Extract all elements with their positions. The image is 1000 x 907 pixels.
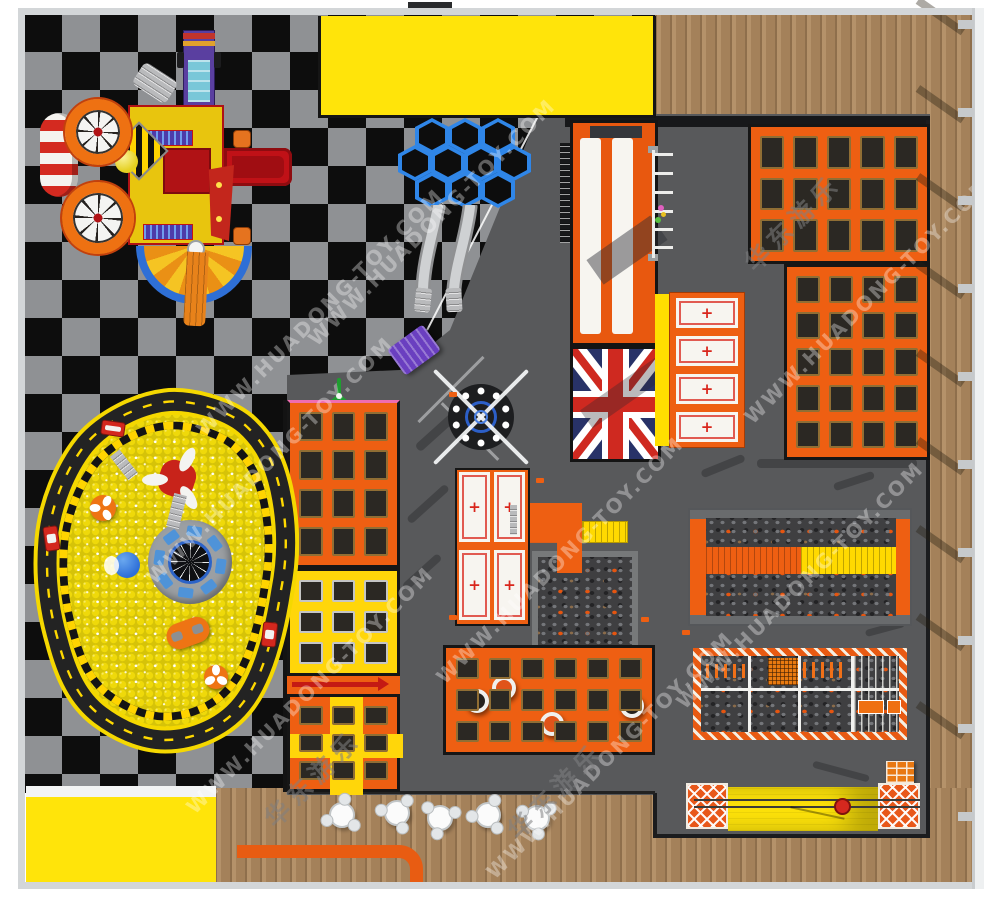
banner-star bbox=[216, 216, 222, 222]
trampoline-mat bbox=[299, 611, 323, 633]
wall-column-bracket bbox=[958, 108, 974, 117]
trampoline-grid-right-bottom bbox=[784, 264, 930, 460]
floor-tag bbox=[536, 478, 544, 483]
trampoline-mat bbox=[456, 721, 479, 742]
dot bbox=[452, 421, 461, 430]
tower-wheel-right bbox=[214, 52, 221, 68]
trampoline-mat bbox=[894, 136, 918, 169]
balance-beam-orange bbox=[706, 547, 801, 574]
wall-column-bracket bbox=[958, 284, 974, 293]
balance-beam-yellow bbox=[801, 547, 896, 574]
trampoline-mat bbox=[829, 312, 853, 339]
trampoline-mat bbox=[299, 527, 323, 556]
rocker-pad bbox=[191, 623, 204, 635]
reception-counter-edge bbox=[26, 786, 216, 797]
ladder-slats bbox=[854, 656, 899, 732]
trampoline-mat bbox=[587, 658, 610, 679]
trampoline-mat bbox=[299, 642, 323, 664]
trampoline-mat bbox=[894, 312, 918, 339]
wall-column-bracket bbox=[958, 372, 974, 381]
trampoline-mat bbox=[760, 178, 784, 211]
bar-ball-yellow bbox=[661, 212, 666, 217]
trampoline-grid-right-top bbox=[748, 124, 930, 264]
trampoline-strip-top bbox=[287, 400, 400, 568]
airtrack-yellow-strip bbox=[655, 294, 669, 446]
pod-petal bbox=[90, 504, 101, 512]
spin-pod bbox=[90, 495, 116, 521]
zipline-wire bbox=[694, 799, 920, 801]
train-tower-window bbox=[188, 60, 210, 102]
trampoline-mat bbox=[862, 276, 886, 303]
pad bbox=[186, 525, 202, 537]
chair bbox=[465, 809, 479, 823]
trampoline-mat bbox=[364, 734, 388, 753]
chair bbox=[486, 792, 503, 809]
court-beam bbox=[798, 656, 801, 732]
dot bbox=[478, 440, 485, 447]
trampoline-mat bbox=[332, 580, 356, 602]
trampoline-mat bbox=[332, 489, 356, 518]
trampoline-mat bbox=[489, 689, 512, 710]
orange-knob bbox=[233, 227, 251, 245]
trampoline-mat bbox=[554, 721, 577, 742]
wall-bottom bbox=[18, 882, 984, 889]
trampoline-mat bbox=[829, 421, 853, 448]
trampoline-mat bbox=[827, 219, 851, 252]
red-arrow-head bbox=[378, 677, 389, 691]
trampoline-mat bbox=[894, 219, 918, 252]
chair bbox=[345, 816, 363, 834]
floor-tag bbox=[682, 630, 690, 635]
trampoline-mat bbox=[299, 761, 323, 780]
trampoline-mat bbox=[829, 385, 853, 412]
wall-left bbox=[18, 8, 25, 888]
wall-bar bbox=[655, 246, 673, 249]
wall-bar bbox=[655, 172, 673, 175]
cafe-table bbox=[418, 796, 462, 840]
trampoline-mat bbox=[521, 658, 544, 679]
trampoline-mat bbox=[894, 348, 918, 375]
trampoline-mat bbox=[364, 611, 388, 633]
cafe-table bbox=[466, 793, 510, 837]
plus-mat: + bbox=[459, 472, 490, 542]
trampoline-mat bbox=[862, 421, 886, 448]
plus-mat: + bbox=[494, 550, 525, 620]
dot bbox=[501, 405, 510, 414]
rocker-pad bbox=[170, 630, 183, 642]
trampoline-mat bbox=[521, 721, 544, 742]
tube-slide-exit bbox=[445, 288, 462, 313]
chair bbox=[531, 827, 545, 841]
indoor-playground-floor-plan: + + + + + + + + bbox=[0, 0, 1000, 907]
trampoline-mat bbox=[860, 219, 884, 252]
trampoline-mat bbox=[332, 527, 356, 556]
trampoline-mat bbox=[364, 580, 388, 602]
wall-right bbox=[972, 8, 984, 889]
wall-bars-pole bbox=[652, 150, 655, 258]
floor-tag bbox=[641, 617, 649, 622]
trampoline-mat bbox=[332, 706, 356, 725]
trampoline-mat bbox=[796, 348, 820, 375]
track-car bbox=[100, 419, 126, 437]
trampoline-mat bbox=[862, 348, 886, 375]
foam-pit-small bbox=[532, 551, 638, 653]
trampoline-mat bbox=[364, 450, 388, 479]
pad bbox=[153, 550, 165, 566]
trampoline-mat bbox=[860, 178, 884, 211]
dot bbox=[452, 405, 461, 414]
tower-wheel-left bbox=[177, 52, 184, 68]
banner-star bbox=[216, 182, 222, 188]
pad bbox=[200, 578, 218, 595]
trampoline-mat bbox=[796, 312, 820, 339]
bar-ball-pink bbox=[658, 205, 664, 211]
chair bbox=[394, 820, 411, 837]
plus-mat: + bbox=[459, 550, 490, 620]
bar-ball-green bbox=[655, 217, 661, 223]
wall-column-bracket bbox=[958, 812, 974, 821]
wall-bar bbox=[655, 191, 673, 194]
trampoline-mat bbox=[521, 689, 544, 710]
trampoline-mat bbox=[619, 658, 642, 679]
trampoline-mat bbox=[793, 136, 817, 169]
trampoline-mat bbox=[894, 385, 918, 412]
trampoline-strip-bottom bbox=[287, 694, 400, 792]
trampoline-mat bbox=[796, 276, 820, 303]
trampoline-mat bbox=[760, 219, 784, 252]
train-crossbar-bottom bbox=[143, 224, 193, 240]
chair bbox=[374, 803, 389, 818]
chair bbox=[398, 792, 416, 810]
cafe-bench bbox=[237, 845, 423, 885]
track-car bbox=[261, 621, 279, 647]
bottom-floor-edge bbox=[655, 834, 930, 838]
trampoline-mat bbox=[894, 421, 918, 448]
honeycomb-climber bbox=[395, 112, 545, 212]
trampoline-mat bbox=[364, 489, 388, 518]
plus-mat: + bbox=[676, 298, 738, 328]
carousel-steps bbox=[183, 251, 209, 326]
trampoline-mat bbox=[860, 136, 884, 169]
trampoline-mat bbox=[299, 450, 323, 479]
trampoline-mat bbox=[827, 178, 851, 211]
trampoline-mat bbox=[364, 527, 388, 556]
wall-column-bracket bbox=[958, 724, 974, 733]
foam-mat bbox=[887, 700, 901, 714]
train-wheel-bottom bbox=[62, 182, 134, 254]
red-slide-lane bbox=[232, 156, 284, 178]
trampoline-mat bbox=[299, 734, 323, 753]
trampoline-mat bbox=[456, 658, 479, 679]
court-beam bbox=[748, 656, 751, 732]
orange-knob bbox=[233, 130, 251, 148]
chair bbox=[541, 800, 559, 818]
red-arrow-shaft bbox=[292, 682, 378, 687]
trampoline-mat bbox=[364, 642, 388, 664]
trampoline-mat bbox=[619, 689, 642, 710]
petal bbox=[142, 473, 168, 486]
trampoline-mat bbox=[894, 178, 918, 211]
chair bbox=[430, 826, 445, 841]
chair bbox=[488, 819, 506, 837]
train-tower-stripe-red bbox=[183, 33, 215, 39]
hanging-bars bbox=[803, 662, 848, 678]
wall-column-bracket bbox=[958, 460, 974, 469]
trampoline-mat bbox=[332, 761, 356, 780]
wall-column-bracket bbox=[958, 636, 974, 645]
dot bbox=[478, 388, 485, 395]
dot bbox=[461, 433, 471, 443]
trampoline-mat bbox=[364, 706, 388, 725]
trampoline-mat bbox=[619, 721, 642, 742]
uk-slide-lane bbox=[580, 138, 601, 334]
trampoline-mat bbox=[793, 219, 817, 252]
mini-ladder bbox=[510, 505, 517, 535]
wall-bar bbox=[655, 228, 673, 231]
trampoline-mat bbox=[862, 312, 886, 339]
trampoline-mat bbox=[862, 385, 886, 412]
dot bbox=[501, 421, 510, 430]
wall-top bbox=[18, 8, 984, 15]
trampoline-mat bbox=[489, 721, 512, 742]
train-tower-stripe-yellow bbox=[183, 41, 215, 46]
plus-mat: + bbox=[676, 374, 738, 404]
chair bbox=[514, 803, 531, 820]
trampoline-mat bbox=[332, 734, 356, 753]
platform-trampoline-wheel bbox=[168, 540, 212, 584]
white-pod bbox=[104, 556, 119, 575]
trampoline-mat bbox=[554, 658, 577, 679]
trampoline-mat bbox=[299, 580, 323, 602]
trampoline-mat bbox=[299, 489, 323, 518]
train-wheel-top bbox=[65, 99, 131, 165]
trampoline-mat bbox=[829, 276, 853, 303]
trampoline-mat bbox=[587, 689, 610, 710]
trampoline-mat bbox=[587, 721, 610, 742]
trampoline-mat bbox=[456, 689, 479, 710]
pod-petal bbox=[212, 665, 220, 676]
floor-step-edge bbox=[653, 793, 657, 838]
trampoline-mat bbox=[332, 642, 356, 664]
plus-mat: + bbox=[676, 336, 738, 366]
pad bbox=[178, 587, 194, 599]
floor-tag bbox=[449, 615, 457, 620]
trampoline-mat bbox=[827, 136, 851, 169]
chair bbox=[319, 812, 336, 829]
chair bbox=[419, 799, 437, 817]
chair bbox=[337, 792, 352, 807]
platform-stairs bbox=[582, 521, 628, 543]
trampoline-strip-middle bbox=[287, 568, 400, 676]
foam-mat bbox=[858, 700, 884, 714]
wall-bar bbox=[655, 153, 673, 156]
cafe-table bbox=[375, 791, 419, 835]
beam-end-cap bbox=[896, 519, 910, 615]
trampoline-mat bbox=[760, 136, 784, 169]
trampoline-mat bbox=[894, 276, 918, 303]
spin-pod bbox=[204, 665, 228, 689]
chair bbox=[447, 804, 464, 821]
reception-room-roof bbox=[26, 797, 216, 885]
trampoline-mat bbox=[364, 761, 388, 780]
swing-disc bbox=[834, 798, 851, 815]
plus-mat: + bbox=[676, 412, 738, 442]
trampoline-mat bbox=[796, 385, 820, 412]
train-cab-panel bbox=[163, 148, 211, 194]
tube-slide-exit bbox=[414, 287, 432, 313]
hanging-bars bbox=[706, 664, 746, 678]
floor-smudge bbox=[757, 459, 917, 468]
trampoline-mat bbox=[793, 178, 817, 211]
uk-slide-top-platform bbox=[590, 126, 642, 138]
party-room-roof-top bbox=[318, 16, 656, 118]
trampoline-mat bbox=[299, 706, 323, 725]
trampoline-mat bbox=[332, 412, 356, 441]
beam-end-cap bbox=[690, 519, 706, 615]
wall-column-bracket bbox=[958, 548, 974, 557]
cafe-table bbox=[515, 796, 559, 840]
floor-tag bbox=[449, 392, 457, 397]
wall-column-bracket bbox=[958, 20, 974, 29]
cargo-net-patch bbox=[768, 658, 798, 685]
trampoline-mat bbox=[829, 348, 853, 375]
trampoline-mat bbox=[489, 658, 512, 679]
trampoline-mat bbox=[299, 412, 323, 441]
trampoline-mat bbox=[332, 450, 356, 479]
dodgeball-court bbox=[443, 645, 655, 755]
cafe-table bbox=[320, 793, 364, 837]
trampoline-mat bbox=[796, 421, 820, 448]
wall-column-bracket bbox=[958, 196, 974, 205]
trampoline-mat bbox=[364, 412, 388, 441]
zipline-wire bbox=[694, 806, 920, 808]
trampoline-mat bbox=[554, 689, 577, 710]
pad bbox=[215, 558, 227, 574]
sweeper-game bbox=[448, 384, 514, 450]
trampoline-mat bbox=[332, 611, 356, 633]
